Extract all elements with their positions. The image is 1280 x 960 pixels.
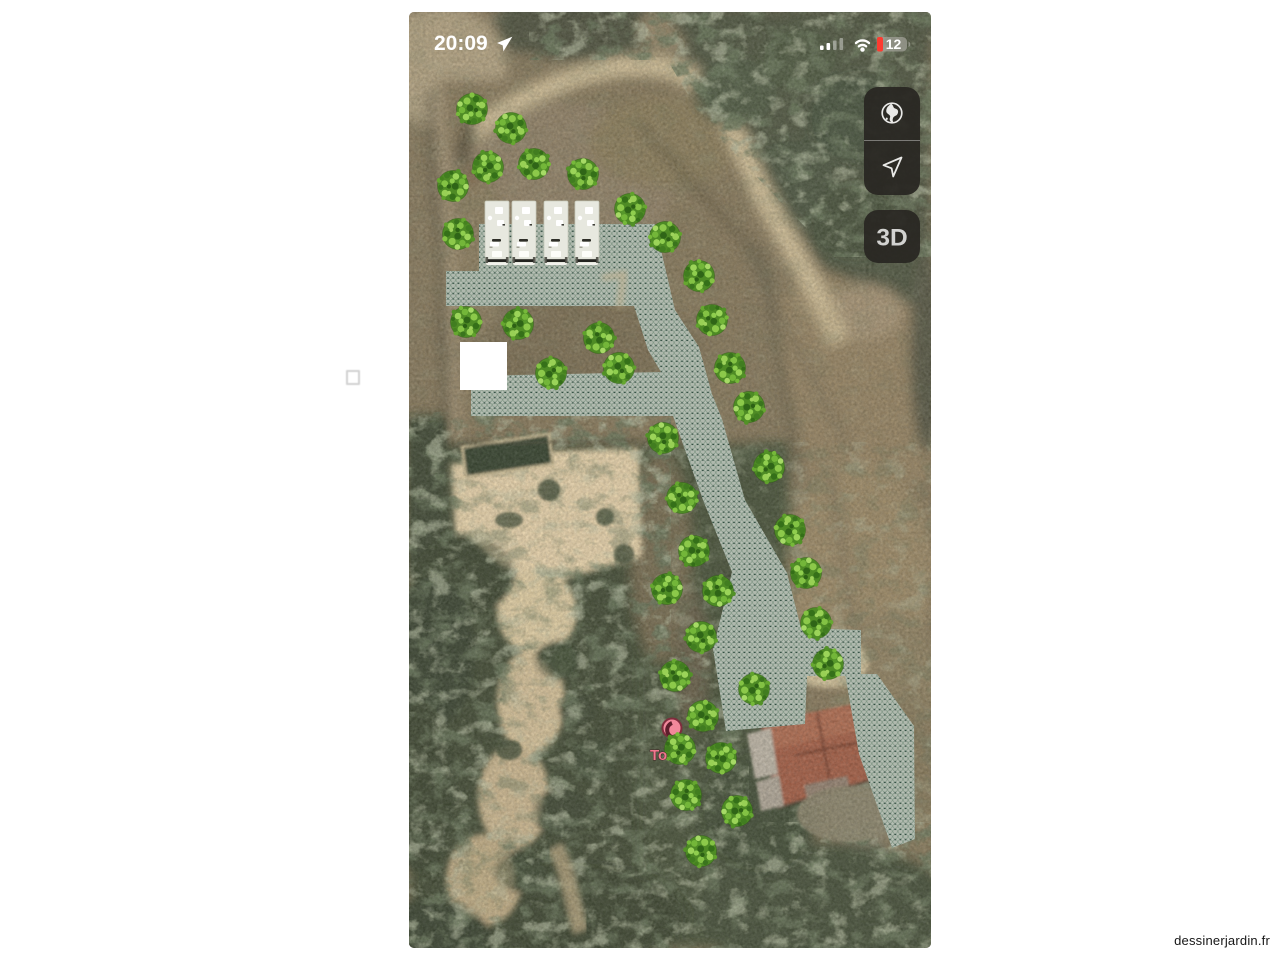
svg-text:To: To [650, 747, 667, 764]
svg-text:3D: 3D [876, 225, 907, 252]
svg-text:12: 12 [886, 36, 902, 52]
